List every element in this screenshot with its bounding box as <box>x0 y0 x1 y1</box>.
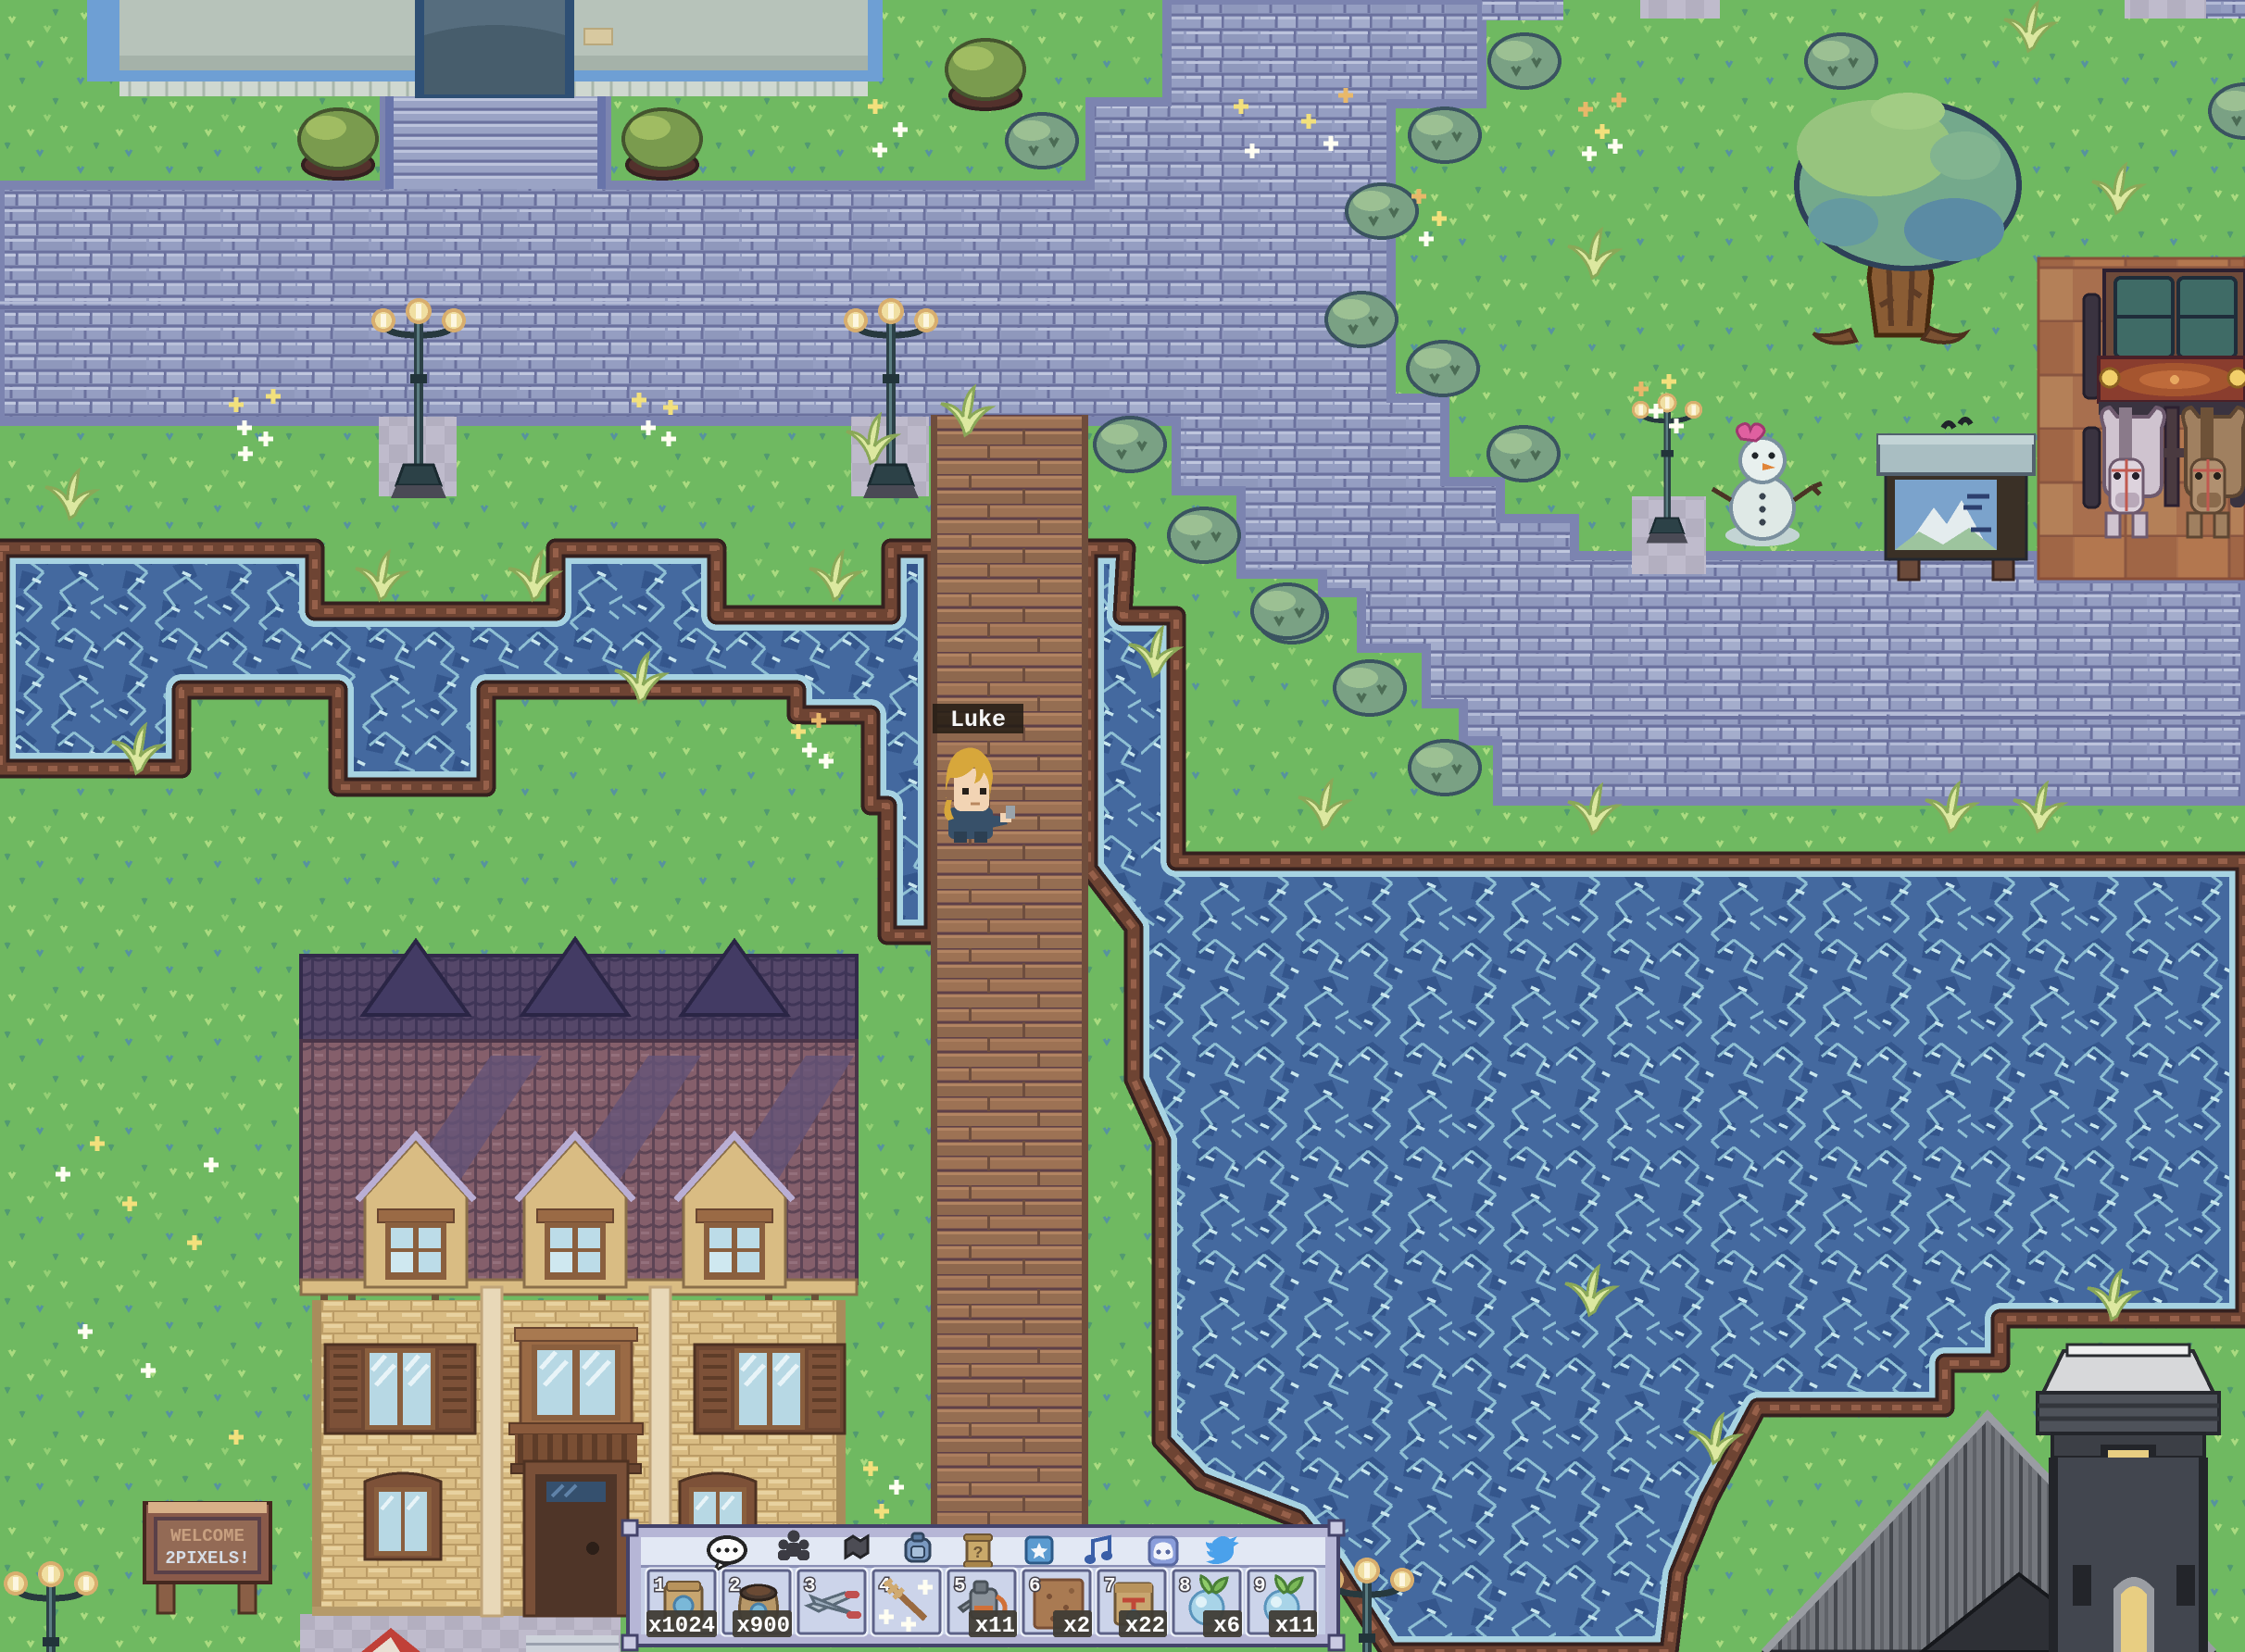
svg-text:3: 3 <box>804 1576 816 1597</box>
svg-text:8: 8 <box>1179 1576 1191 1597</box>
svg-text:WELCOME: WELCOME <box>170 1526 245 1546</box>
svg-text:?: ? <box>973 1545 984 1563</box>
svg-text:x11: x11 <box>975 1614 1015 1639</box>
svg-text:x2: x2 <box>1063 1614 1090 1639</box>
svg-text:x11: x11 <box>1275 1614 1315 1639</box>
svg-text:6: 6 <box>1029 1576 1041 1597</box>
svg-text:5: 5 <box>954 1576 966 1597</box>
svg-text:x22: x22 <box>1125 1614 1165 1639</box>
svg-text:x900: x900 <box>736 1614 790 1639</box>
svg-text:Luke: Luke <box>950 707 1006 733</box>
svg-text:9: 9 <box>1254 1576 1266 1597</box>
svg-text:x1024: x1024 <box>648 1614 715 1639</box>
svg-text:2PIXELS!: 2PIXELS! <box>165 1548 249 1569</box>
svg-text:2: 2 <box>729 1576 741 1597</box>
svg-text:x6: x6 <box>1213 1614 1240 1639</box>
